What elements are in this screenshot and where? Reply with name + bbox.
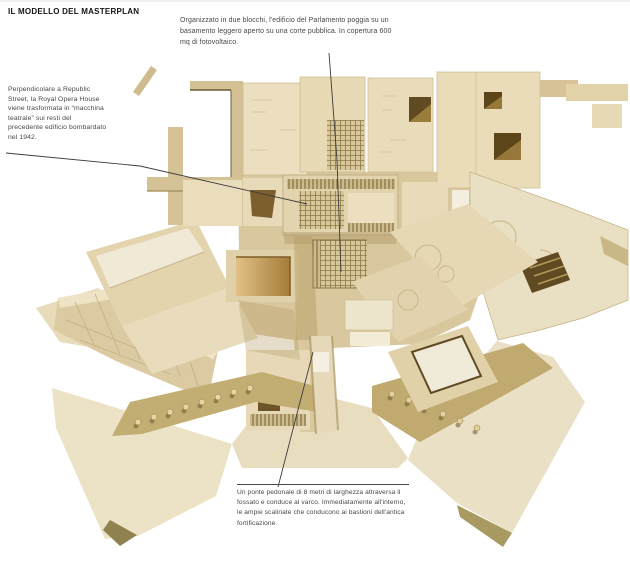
annotation-bridge: Un ponte pedonale di 8 metri di larghezz… — [237, 484, 409, 529]
model-small-blocks — [345, 300, 393, 346]
annotation-parliament: Organizzato in due blocchi, l'edificio d… — [180, 15, 396, 48]
model-courtyard-amber — [226, 250, 298, 302]
page-title: IL MODELLO DEL MASTERPLAN — [8, 7, 139, 16]
annotation-opera-house: Perpendicolare a Republic Street, la Roy… — [8, 85, 108, 143]
magazine-page: IL MODELLO DEL MASTERPLAN Organizzato in… — [0, 0, 630, 576]
model-parliament-court — [283, 175, 398, 244]
